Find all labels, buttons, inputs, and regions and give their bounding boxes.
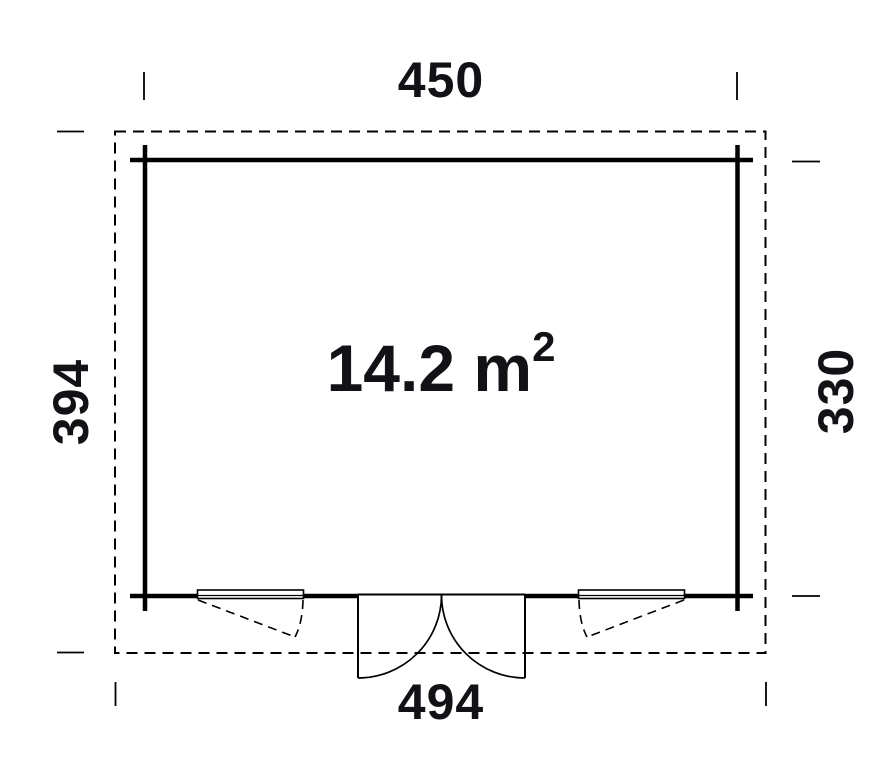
window-right-frame bbox=[579, 590, 685, 599]
dimension-label-top: 450 bbox=[398, 52, 484, 108]
door-left-swing-arc bbox=[358, 595, 442, 678]
double-door bbox=[358, 595, 525, 679]
window-left-opening-arc bbox=[295, 600, 303, 637]
dimension-label-left: 394 bbox=[43, 359, 99, 445]
window-left-opening-dash bbox=[198, 600, 295, 637]
area-superscript: 2 bbox=[532, 323, 555, 370]
area-label: 14.2 m2 bbox=[327, 323, 556, 405]
floor-plan-canvas: 450 494 394 330 14.2 m2 bbox=[0, 0, 873, 763]
window-right-opening-arc bbox=[579, 600, 587, 637]
dimension-label-bottom: 494 bbox=[398, 674, 484, 730]
window-right-opening-dash bbox=[587, 600, 684, 637]
floor-plan-drawing: 450 494 394 330 14.2 m2 bbox=[0, 0, 873, 763]
area-value: 14.2 m bbox=[327, 331, 532, 405]
window-left bbox=[198, 590, 304, 637]
window-right bbox=[579, 590, 685, 637]
door-right-swing-arc bbox=[442, 595, 526, 678]
window-left-frame bbox=[198, 590, 304, 599]
dimension-label-right: 330 bbox=[808, 348, 864, 434]
